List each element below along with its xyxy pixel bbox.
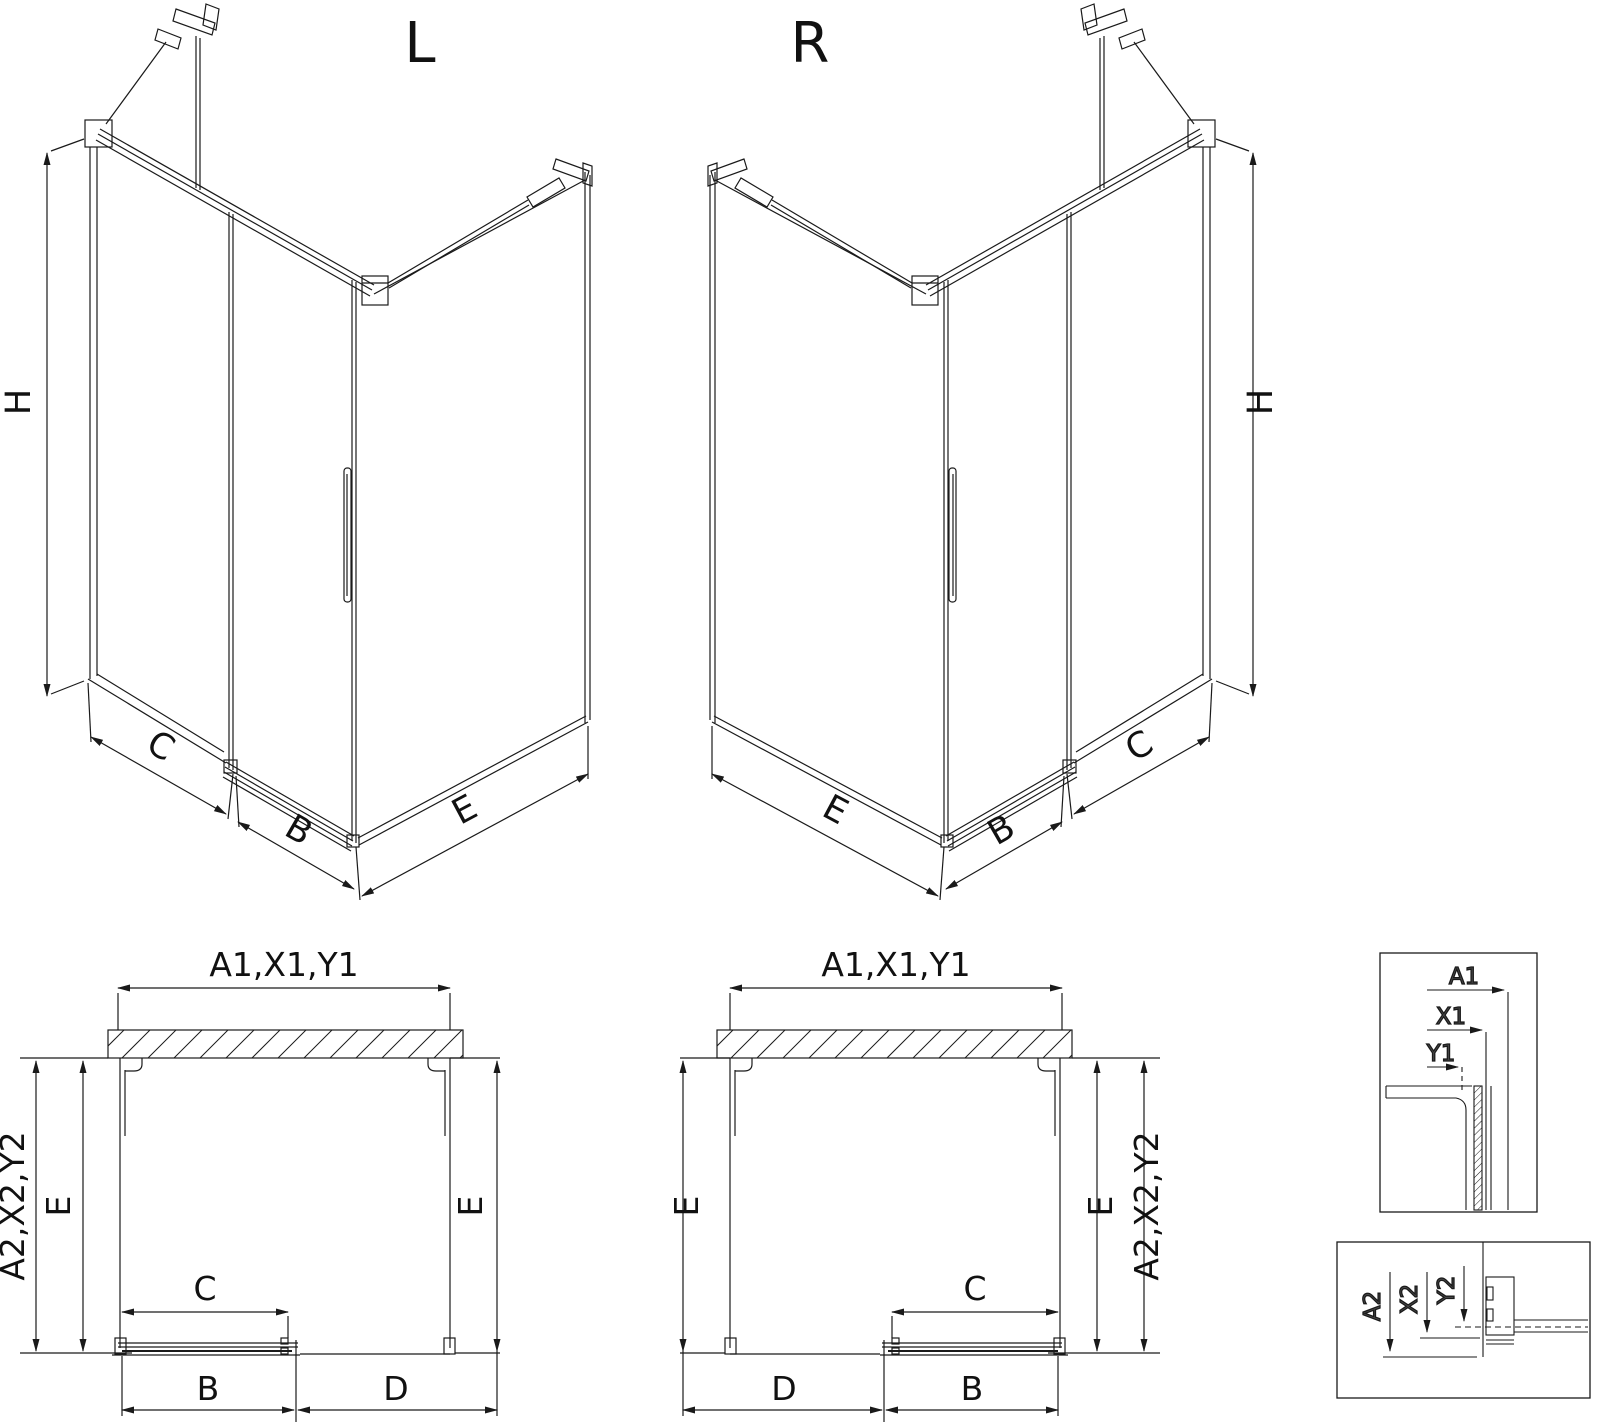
plan-r-e-left-label: E — [667, 1196, 706, 1217]
plan-l-e-left-label: E — [39, 1196, 78, 1217]
plan-r-e-right-label: E — [1081, 1196, 1120, 1217]
detail-a1-box: A1 X1 Y1 — [1380, 953, 1537, 1212]
plan-l-depth-label: A2,X2,Y2 — [0, 1131, 32, 1280]
technical-drawing-page: L H C B E R H C B E A1,X1,Y1 A2,X2,Y2 E … — [0, 0, 1600, 1423]
dim-label-c-r: C — [1119, 723, 1160, 770]
dim-label-b-r: B — [981, 807, 1022, 854]
dim-label-b-l: B — [278, 807, 319, 854]
wall-hatch-l — [96, 1030, 488, 1058]
plan-r-width-label: A1,X1,Y1 — [821, 945, 970, 984]
detail-a1-label: A1 — [1449, 964, 1479, 990]
detail-x1-label: X1 — [1436, 1004, 1466, 1030]
detail-y1-label: Y1 — [1426, 1041, 1456, 1067]
plan-r-depth-label: A2,X2,Y2 — [1127, 1131, 1166, 1280]
plan-r-c-label: C — [963, 1269, 986, 1308]
shower-enclosure-technical-drawing: L H C B E R H C B E A1,X1,Y1 A2,X2,Y2 E … — [0, 0, 1600, 1423]
iso-view-r: R H C B E — [708, 4, 1281, 900]
dim-label-e-l: E — [446, 787, 484, 833]
plan-view-r: A1,X1,Y1 A2,X2,Y2 E E C B D — [667, 945, 1166, 1422]
detail-y2-label: Y2 — [1434, 1276, 1460, 1306]
dim-label-h-r: H — [1241, 389, 1281, 415]
dim-label-e-r: E — [816, 787, 854, 833]
plan-l-b-label: B — [197, 1369, 220, 1408]
detail-x2-label: X2 — [1397, 1284, 1423, 1314]
plan-l-e-right-label: E — [451, 1196, 490, 1217]
plan-r-b-label: B — [961, 1369, 984, 1408]
plan-l-width-label: A1,X1,Y1 — [209, 945, 358, 984]
plan-l-d-label: D — [383, 1369, 408, 1408]
iso-view-l: L H C B E — [0, 4, 592, 900]
wall-hatch-r — [705, 1030, 1097, 1058]
view-l-title: L — [404, 11, 435, 76]
plan-view-l: A1,X1,Y1 A2,X2,Y2 E E C B D — [0, 945, 500, 1422]
plan-r-d-label: D — [771, 1369, 796, 1408]
dim-label-c-l: C — [140, 723, 181, 770]
view-r-title: R — [791, 11, 830, 76]
dim-label-h-l: H — [0, 389, 39, 415]
detail-a2-box: A2 X2 Y2 — [1337, 1242, 1590, 1398]
plan-l-c-label: C — [193, 1269, 216, 1308]
detail-a2-label: A2 — [1360, 1291, 1386, 1321]
